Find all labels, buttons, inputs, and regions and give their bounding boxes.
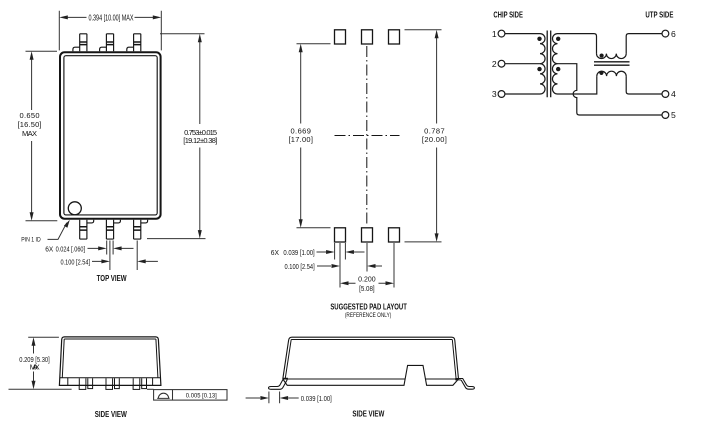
svg-text:0.039 [1.00]: 0.039 [1.00]	[301, 396, 332, 403]
svg-text:2: 2	[492, 59, 497, 69]
svg-text:6X: 6X	[45, 246, 53, 253]
svg-text:(REFERENCE ONLY): (REFERENCE ONLY)	[345, 312, 392, 319]
svg-text:0.039 [1.00]: 0.039 [1.00]	[283, 250, 314, 257]
svg-text:0.650: 0.650	[20, 111, 40, 120]
svg-text:SIDE VIEW: SIDE VIEW	[352, 409, 385, 419]
svg-text:0.200: 0.200	[358, 277, 376, 284]
svg-text:5: 5	[671, 110, 676, 120]
svg-text:SIDE VIEW: SIDE VIEW	[95, 409, 128, 419]
svg-text:0.100 [2.54]: 0.100 [2.54]	[61, 259, 91, 266]
svg-text:TOP VIEW: TOP VIEW	[97, 273, 128, 283]
svg-text:UTP SIDE: UTP SIDE	[645, 10, 673, 20]
svg-text:MAX: MAX	[30, 362, 40, 371]
svg-text:0.394 [10.00] MAX: 0.394 [10.00] MAX	[89, 13, 134, 22]
svg-text:0.024 [.060]: 0.024 [.060]	[56, 246, 86, 253]
svg-text:4: 4	[671, 89, 676, 99]
svg-text:[19.12±0.38]: [19.12±0.38]	[183, 136, 217, 145]
svg-text:6: 6	[671, 29, 676, 39]
svg-text:CHIP SIDE: CHIP SIDE	[493, 10, 523, 20]
svg-text:SUGGESTED PAD LAYOUT: SUGGESTED PAD LAYOUT	[330, 301, 407, 311]
svg-text:6X: 6X	[271, 250, 280, 257]
svg-text:3: 3	[492, 89, 497, 99]
svg-text:[20.00]: [20.00]	[422, 135, 447, 144]
svg-text:[17.00]: [17.00]	[288, 135, 313, 144]
svg-text:MAX: MAX	[22, 129, 37, 138]
svg-text:0.005 [0.13]: 0.005 [0.13]	[186, 393, 217, 400]
svg-text:0.100 [2.54]: 0.100 [2.54]	[285, 264, 315, 271]
svg-text:[16.50]: [16.50]	[18, 120, 42, 129]
svg-text:PIN 1 ID: PIN 1 ID	[21, 236, 41, 243]
svg-text:1: 1	[492, 29, 497, 39]
svg-text:[5.08]: [5.08]	[359, 286, 375, 293]
